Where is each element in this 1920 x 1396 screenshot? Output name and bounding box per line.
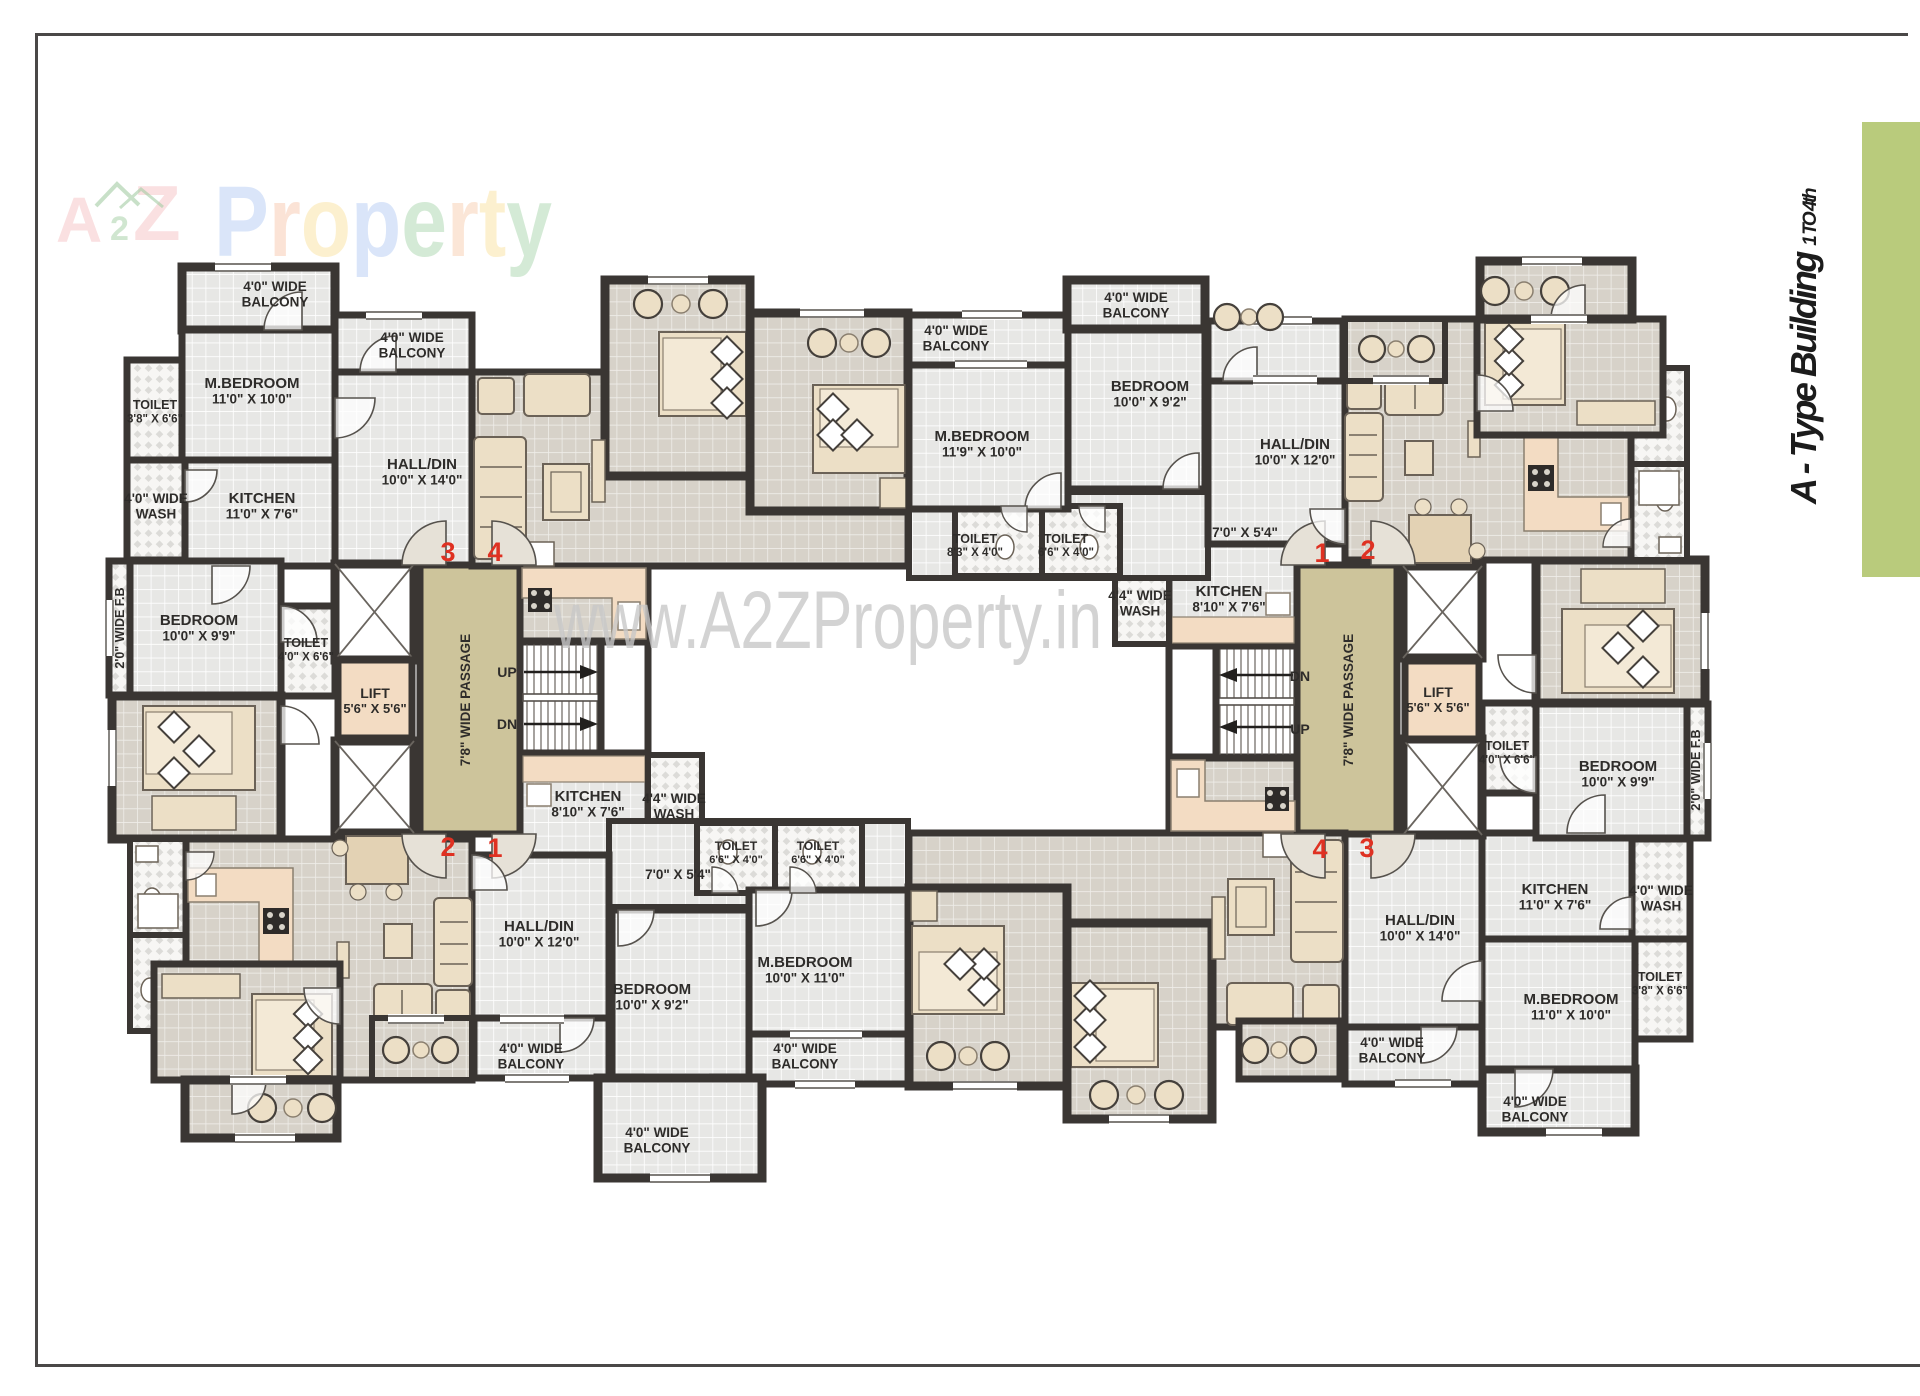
svg-text:10'0" X 12'0": 10'0" X 12'0" xyxy=(499,935,580,950)
svg-text:4: 4 xyxy=(487,537,502,567)
svg-text:4'0" X 6'6": 4'0" X 6'6" xyxy=(1479,755,1535,767)
svg-text:11'0" X 10'0": 11'0" X 10'0" xyxy=(1531,1008,1611,1023)
svg-text:3: 3 xyxy=(1359,833,1374,863)
svg-text:4: 4 xyxy=(1312,834,1327,864)
svg-text:KITCHEN: KITCHEN xyxy=(555,788,622,805)
svg-text:10'0" X 11'0": 10'0" X 11'0" xyxy=(765,971,845,986)
svg-text:11'0" X 7'6": 11'0" X 7'6" xyxy=(226,507,299,522)
svg-text:WASH: WASH xyxy=(654,807,695,822)
svg-text:TOILET: TOILET xyxy=(1044,532,1089,546)
svg-text:8'3" X 4'0": 8'3" X 4'0" xyxy=(947,547,1003,559)
svg-text:BALCONY: BALCONY xyxy=(1103,306,1170,321)
svg-text:TOILET: TOILET xyxy=(715,839,758,853)
svg-text:10'0" X 9'9": 10'0" X 9'9" xyxy=(162,629,235,644)
svg-text:WASH: WASH xyxy=(1641,899,1682,914)
svg-text:BEDROOM: BEDROOM xyxy=(613,981,691,998)
svg-text:UP: UP xyxy=(1290,721,1309,737)
svg-text:6'6" X 4'0": 6'6" X 4'0" xyxy=(1038,547,1094,559)
svg-text:KITCHEN: KITCHEN xyxy=(229,490,296,507)
svg-text:10'0" X 12'0": 10'0" X 12'0" xyxy=(1255,453,1336,468)
svg-text:Z: Z xyxy=(133,169,181,257)
svg-text:LIFT: LIFT xyxy=(360,685,390,701)
svg-text:DN: DN xyxy=(1290,668,1310,684)
svg-text:7'0" X 5'4": 7'0" X 5'4" xyxy=(1212,525,1278,540)
svg-text:4'0" WIDE: 4'0" WIDE xyxy=(1629,883,1693,898)
svg-text:4'0" WIDE: 4'0" WIDE xyxy=(243,279,307,294)
svg-text:6'6" X 4'0": 6'6" X 4'0" xyxy=(709,854,763,866)
svg-text:A: A xyxy=(56,184,102,256)
svg-text:BALCONY: BALCONY xyxy=(242,295,309,310)
svg-text:3'8" X 6'6": 3'8" X 6'6" xyxy=(1632,986,1688,998)
svg-text:2'0" WIDE F.B: 2'0" WIDE F.B xyxy=(1689,729,1703,810)
svg-text:WASH: WASH xyxy=(1120,604,1161,619)
svg-text:TOILET: TOILET xyxy=(133,398,178,412)
svg-text:2: 2 xyxy=(1360,535,1375,565)
svg-text:BALCONY: BALCONY xyxy=(1359,1051,1426,1066)
svg-text:BALCONY: BALCONY xyxy=(498,1057,565,1072)
svg-text:LIFT: LIFT xyxy=(1423,684,1453,700)
svg-text:10'0" X 9'9": 10'0" X 9'9" xyxy=(1581,775,1654,790)
svg-text:TOILET: TOILET xyxy=(953,532,998,546)
svg-text:3'8" X 6'6": 3'8" X 6'6" xyxy=(127,414,183,426)
svg-text:BALCONY: BALCONY xyxy=(624,1141,691,1156)
svg-text:www.A2ZProperty.in: www.A2ZProperty.in xyxy=(553,575,1102,666)
svg-text:HALL/DIN: HALL/DIN xyxy=(1260,436,1330,453)
svg-text:5'6" X 5'6": 5'6" X 5'6" xyxy=(343,701,406,716)
svg-text:4'4" WIDE: 4'4" WIDE xyxy=(1108,588,1172,603)
svg-text:2: 2 xyxy=(110,210,129,248)
svg-text:7'8" WIDE PASSAGE: 7'8" WIDE PASSAGE xyxy=(458,634,473,766)
svg-text:BALCONY: BALCONY xyxy=(772,1057,839,1072)
svg-text:BALCONY: BALCONY xyxy=(1502,1110,1569,1125)
svg-text:4'0" WIDE: 4'0" WIDE xyxy=(773,1041,837,1056)
svg-text:10'0" X 9'2": 10'0" X 9'2" xyxy=(1113,395,1186,410)
svg-text:TOILET: TOILET xyxy=(284,636,329,650)
svg-text:BALCONY: BALCONY xyxy=(379,346,446,361)
svg-text:M.BEDROOM: M.BEDROOM xyxy=(1524,991,1619,1008)
svg-text:4'0" WIDE: 4'0" WIDE xyxy=(1360,1035,1424,1050)
svg-text:4'0" WIDE: 4'0" WIDE xyxy=(625,1125,689,1140)
svg-text:4'0" WIDE: 4'0" WIDE xyxy=(1104,290,1168,305)
svg-text:10'0" X 9'2": 10'0" X 9'2" xyxy=(615,998,688,1013)
svg-text:HALL/DIN: HALL/DIN xyxy=(1385,912,1455,929)
svg-text:7'0" X 5'4": 7'0" X 5'4" xyxy=(645,867,711,882)
svg-text:1: 1 xyxy=(1314,538,1329,568)
svg-text:4'0" WIDE: 4'0" WIDE xyxy=(499,1041,563,1056)
svg-text:HALL/DIN: HALL/DIN xyxy=(504,918,574,935)
svg-text:2: 2 xyxy=(440,832,455,862)
svg-text:M.BEDROOM: M.BEDROOM xyxy=(205,375,300,392)
svg-text:BALCONY: BALCONY xyxy=(923,339,990,354)
svg-text:3: 3 xyxy=(440,537,455,567)
svg-text:11'0" X 7'6": 11'0" X 7'6" xyxy=(1519,898,1592,913)
svg-text:HALL/DIN: HALL/DIN xyxy=(387,456,457,473)
svg-text:11'0" X 10'0": 11'0" X 10'0" xyxy=(212,392,292,407)
svg-text:UP: UP xyxy=(497,664,516,680)
svg-text:TOILET: TOILET xyxy=(1485,739,1530,753)
svg-text:1: 1 xyxy=(487,833,502,863)
svg-text:M.BEDROOM: M.BEDROOM xyxy=(935,428,1030,445)
svg-text:8'10" X 7'6": 8'10" X 7'6" xyxy=(1192,600,1265,615)
svg-text:4'0" WIDE: 4'0" WIDE xyxy=(124,491,188,506)
svg-text:2'0" WIDE F.B: 2'0" WIDE F.B xyxy=(113,587,127,668)
svg-text:6'6" X 4'0": 6'6" X 4'0" xyxy=(791,854,845,866)
svg-text:11'9" X 10'0": 11'9" X 10'0" xyxy=(942,445,1022,460)
svg-text:4'0" WIDE: 4'0" WIDE xyxy=(924,323,988,338)
svg-text:4'4" WIDE: 4'4" WIDE xyxy=(642,791,706,806)
svg-text:DN: DN xyxy=(497,716,517,732)
svg-text:WASH: WASH xyxy=(136,507,177,522)
svg-text:M.BEDROOM: M.BEDROOM xyxy=(758,954,853,971)
svg-text:BEDROOM: BEDROOM xyxy=(1579,758,1657,775)
svg-text:7'8" WIDE PASSAGE: 7'8" WIDE PASSAGE xyxy=(1341,634,1356,766)
svg-text:10'0" X 14'0": 10'0" X 14'0" xyxy=(382,473,463,488)
svg-text:10'0" X 14'0": 10'0" X 14'0" xyxy=(1380,929,1461,944)
svg-text:KITCHEN: KITCHEN xyxy=(1522,881,1589,898)
svg-text:4'0" WIDE: 4'0" WIDE xyxy=(380,330,444,345)
svg-text:Property: Property xyxy=(214,166,552,278)
svg-text:TOILET: TOILET xyxy=(797,839,840,853)
svg-text:8'10" X 7'6": 8'10" X 7'6" xyxy=(551,805,624,820)
svg-text:BEDROOM: BEDROOM xyxy=(1111,378,1189,395)
svg-text:KITCHEN: KITCHEN xyxy=(1196,583,1263,600)
svg-text:TOILET: TOILET xyxy=(1638,970,1683,984)
svg-text:4'0" X 6'6": 4'0" X 6'6" xyxy=(278,652,334,664)
svg-text:5'6" X 5'6": 5'6" X 5'6" xyxy=(1406,700,1469,715)
svg-text:4'0" WIDE: 4'0" WIDE xyxy=(1503,1094,1567,1109)
svg-text:BEDROOM: BEDROOM xyxy=(160,612,238,629)
